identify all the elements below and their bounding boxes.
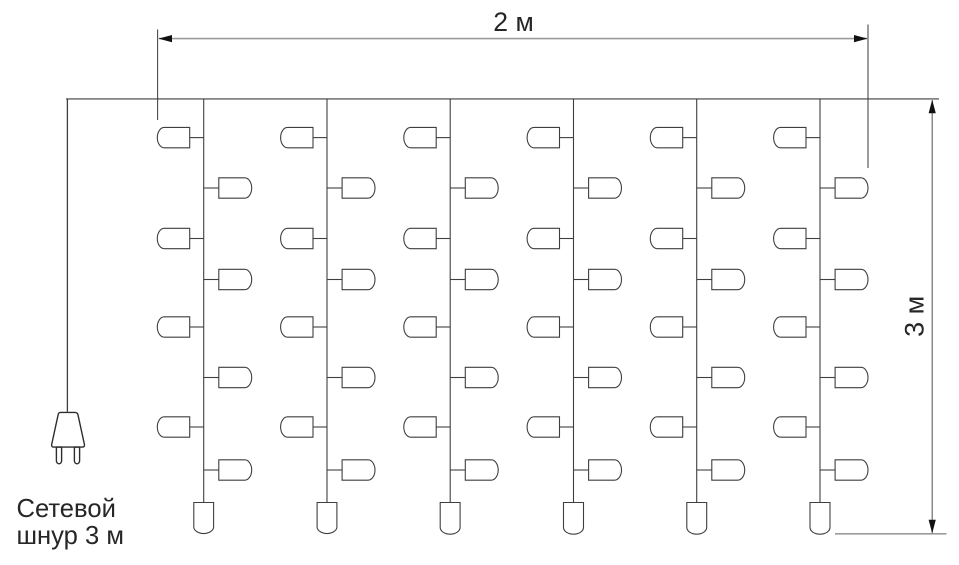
svg-text:шнур 3 м: шнур 3 м [17, 522, 124, 550]
svg-text:2 м: 2 м [493, 7, 533, 37]
svg-text:Сетевой: Сетевой [17, 495, 116, 523]
svg-text:3 м: 3 м [899, 296, 929, 337]
